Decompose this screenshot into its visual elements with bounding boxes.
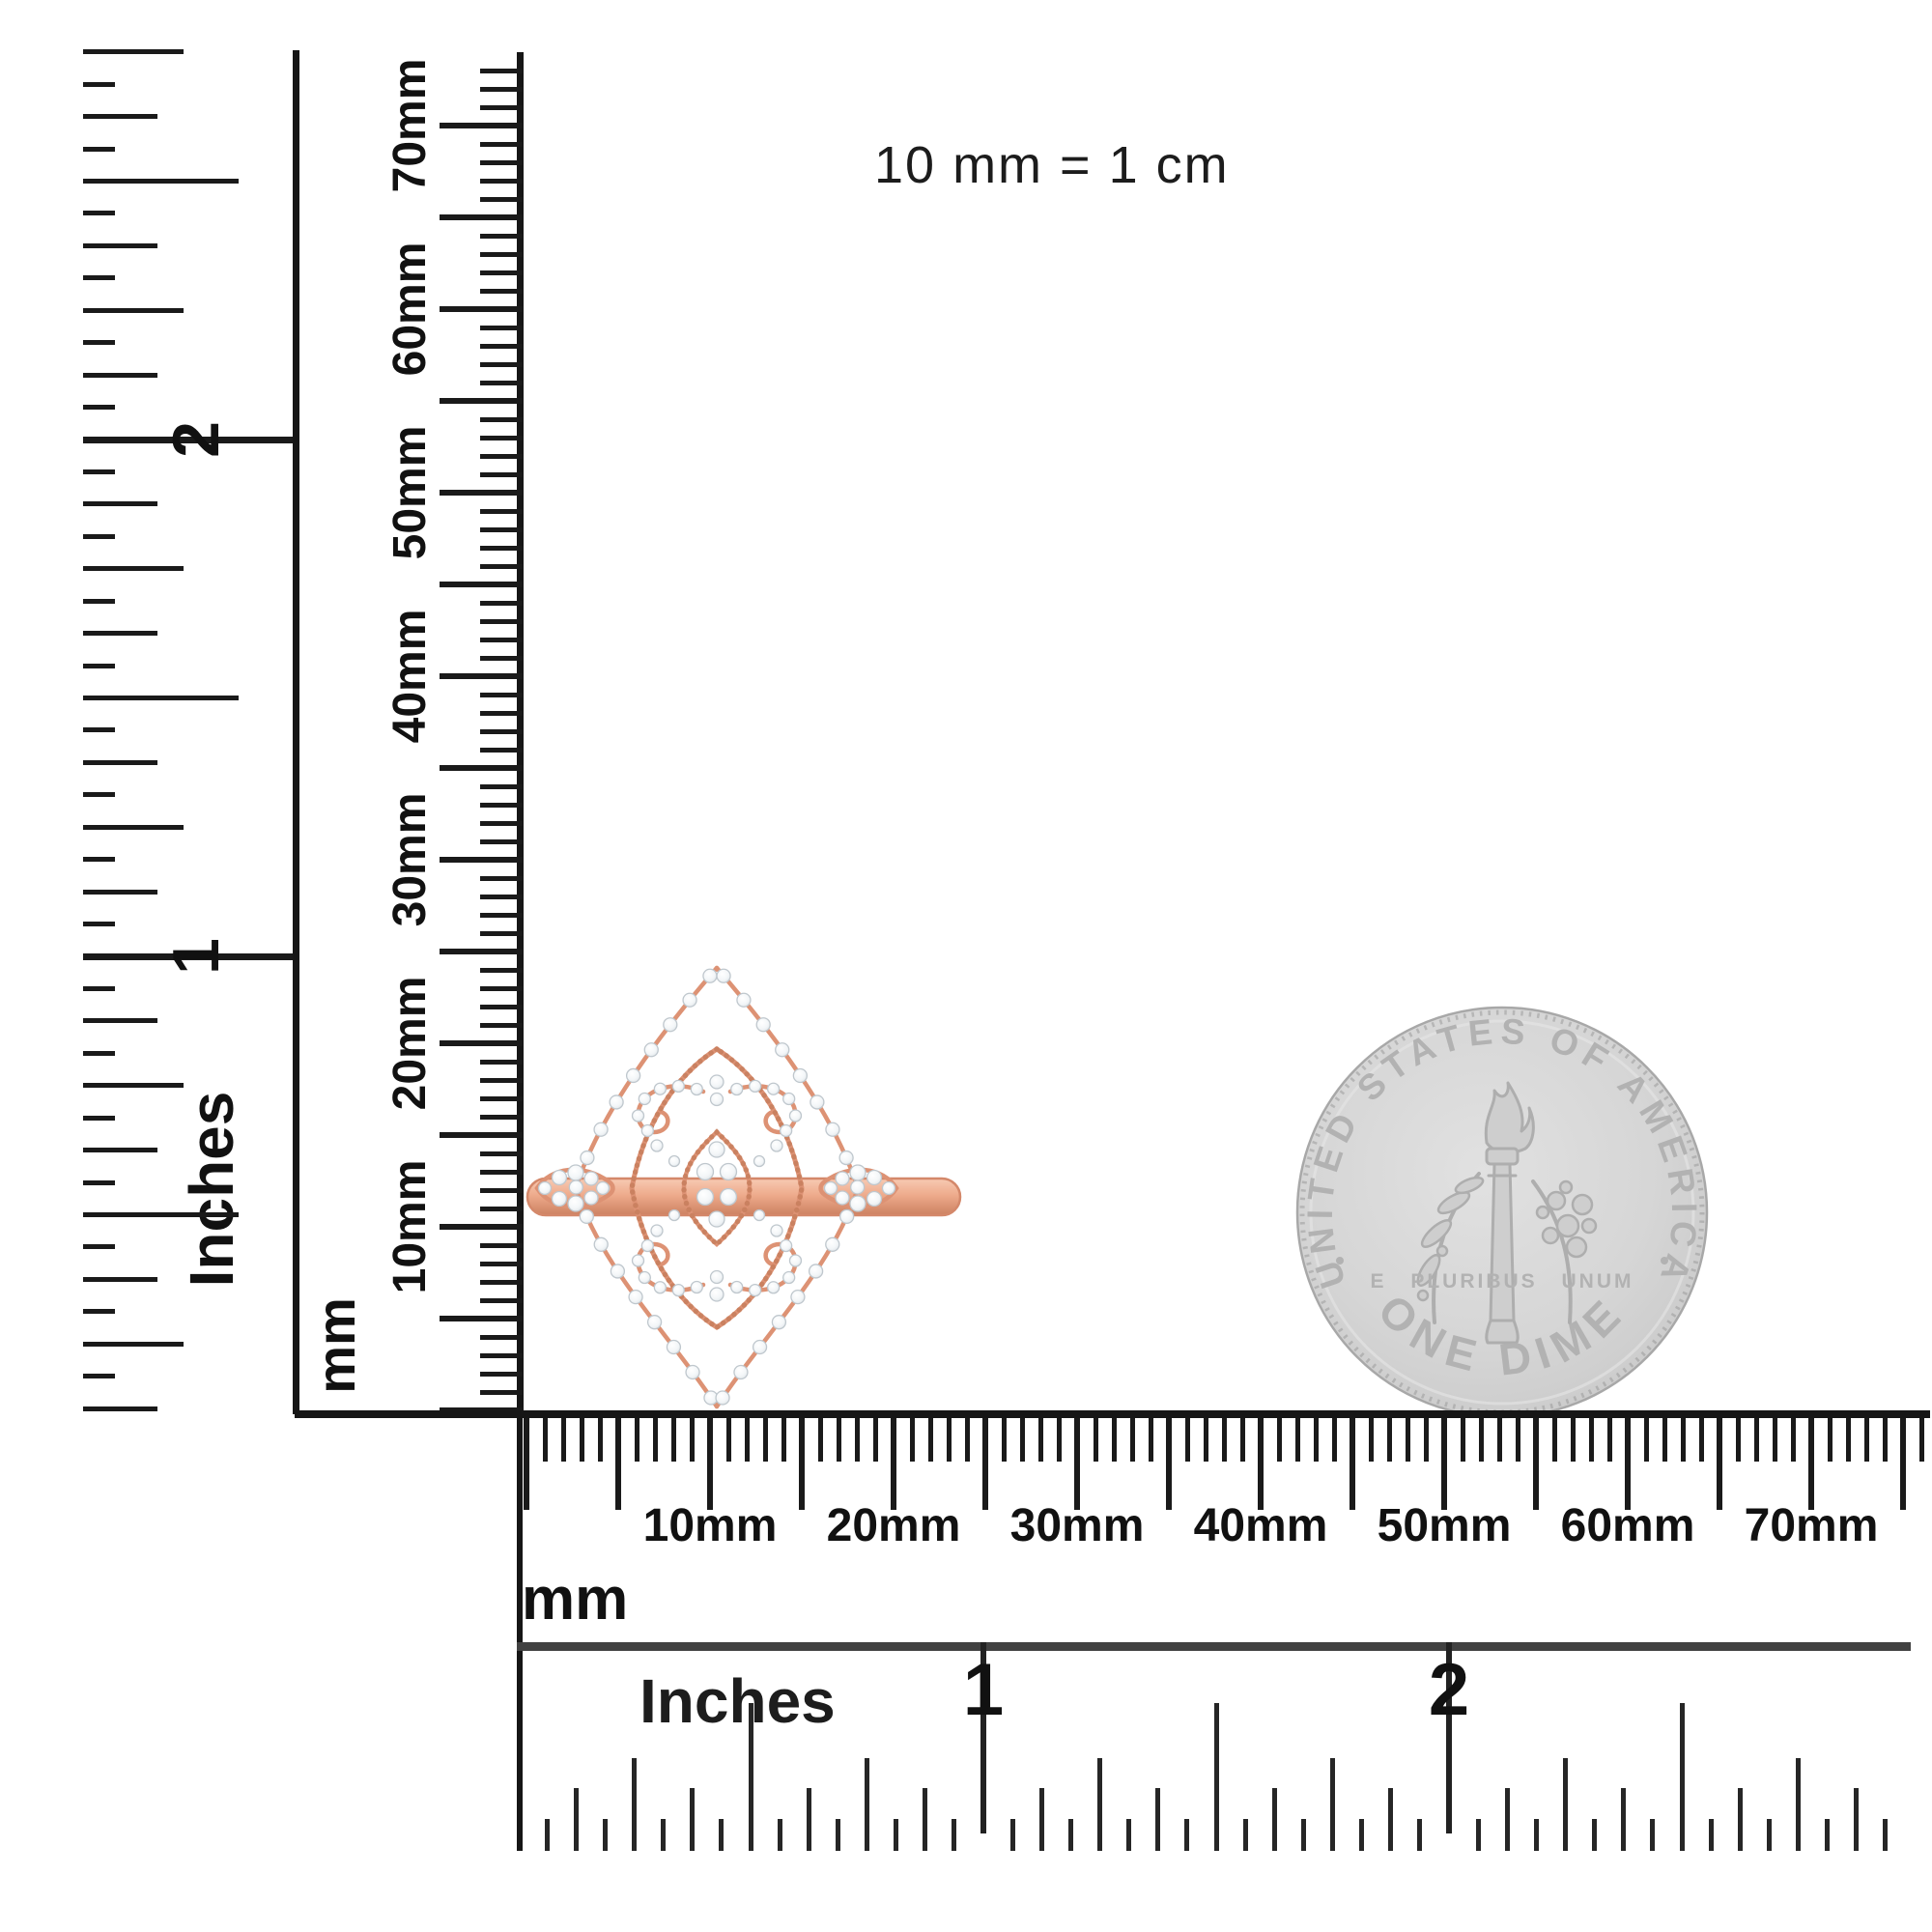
inches-tick-sixteenth — [83, 1374, 115, 1378]
diamond-stone — [734, 1365, 748, 1378]
inches-ruler-top-line — [517, 1642, 1911, 1651]
diamond-stone — [651, 1225, 663, 1236]
mm-tick-major — [440, 1316, 523, 1321]
mm-tick — [1919, 1418, 1924, 1462]
mm-ruler-label: 40mm — [1174, 1499, 1348, 1552]
diamond-stone — [851, 1180, 865, 1194]
mm-tick — [480, 1096, 523, 1101]
diamond-stone — [644, 1043, 658, 1057]
mm-tick-major — [1166, 1418, 1172, 1510]
mm-tick — [480, 454, 523, 459]
inches-tick-sixteenth — [83, 599, 115, 604]
left-inches-unit-label: Inches — [173, 1064, 250, 1315]
diamond-stone — [584, 1191, 598, 1205]
mm-tick — [1222, 1418, 1227, 1462]
diamond-stone — [667, 1340, 680, 1353]
diamond-stone — [810, 1264, 823, 1278]
inches-tick-sixteenth — [83, 1309, 115, 1314]
diamond-stone — [716, 1391, 729, 1405]
mm-tick — [818, 1418, 823, 1462]
inches-tick-eighth — [807, 1788, 811, 1851]
diamond-stone — [569, 1180, 582, 1194]
mm-tick — [480, 527, 523, 532]
diamond-stone — [826, 1237, 839, 1251]
diamond-stone — [772, 1316, 785, 1329]
mm-tick — [480, 656, 523, 661]
diamond-stone — [568, 1165, 583, 1180]
diamond-stone — [754, 1210, 765, 1221]
inches-tick-eighth — [83, 1277, 157, 1282]
mm-tick — [873, 1418, 878, 1462]
mm-tick — [1277, 1418, 1282, 1462]
inches-tick-sixteenth — [1767, 1819, 1772, 1851]
mm-tick-major — [615, 1418, 621, 1510]
inches-tick-sixteenth — [83, 1244, 115, 1249]
mm-tick — [1149, 1418, 1153, 1462]
mm-tick — [1516, 1418, 1520, 1462]
diamond-stone — [776, 1043, 789, 1057]
diamond-stone — [839, 1151, 853, 1165]
inches-tick-eighth — [83, 1148, 157, 1152]
mm-tick-major — [982, 1418, 988, 1510]
mm-tick — [480, 821, 523, 826]
left-mm-unit-label: mm — [300, 1259, 370, 1433]
inches-tick-quarter — [1097, 1758, 1102, 1851]
inches-tick-quarter — [1796, 1758, 1801, 1851]
mm-tick — [1295, 1418, 1300, 1462]
inch-numeral: 1 — [157, 918, 235, 995]
inches-tick-eighth — [83, 631, 157, 636]
mm-tick — [745, 1418, 750, 1462]
bottom-mm-unit-label: mm — [522, 1565, 628, 1634]
mm-tick — [781, 1418, 786, 1462]
inch-numeral: 2 — [157, 401, 235, 478]
inch-numeral: 2 — [1406, 1648, 1492, 1732]
inches-tick-sixteenth — [83, 147, 115, 152]
inches-tick-eighth — [83, 1406, 157, 1411]
mm-tick — [480, 234, 523, 239]
mm-tick — [480, 784, 523, 789]
bottom-inches-unit-label: Inches — [639, 1665, 836, 1737]
diamond-stone — [789, 1255, 801, 1266]
mm-tick — [1736, 1418, 1741, 1462]
mm-tick-major — [1074, 1418, 1080, 1510]
diamond-stone — [771, 1140, 782, 1151]
diamond-stone — [754, 1156, 765, 1167]
inches-tick-quarter — [865, 1758, 869, 1851]
inches-tick-eighth — [1505, 1788, 1510, 1851]
mm-tick — [480, 1335, 523, 1340]
mm-tick-major — [1533, 1418, 1539, 1510]
inches-tick-sixteenth — [1825, 1819, 1830, 1851]
inches-tick-sixteenth — [83, 792, 115, 797]
inches-tick-eighth — [574, 1788, 579, 1851]
inches-tick-sixteenth — [545, 1819, 550, 1851]
inches-tick-sixteenth — [1301, 1819, 1306, 1851]
inches-tick-quarter — [1330, 1758, 1335, 1851]
torch-holder — [1487, 1149, 1518, 1164]
mm-tick — [1038, 1418, 1043, 1462]
diamond-stone — [669, 1210, 680, 1221]
mm-tick — [480, 1023, 523, 1028]
diamond-stone — [581, 1151, 594, 1165]
mm-tick — [1461, 1418, 1465, 1462]
diamond-stone — [750, 1285, 761, 1296]
diamond-stone — [711, 1271, 724, 1284]
mm-tick — [480, 105, 523, 110]
mm-ruler-label: 70mm — [375, 39, 444, 213]
diamond-stone — [825, 1182, 838, 1195]
mm-tick-major — [1441, 1418, 1447, 1510]
mm-tick-major — [799, 1418, 805, 1510]
inches-tick-eighth — [1621, 1788, 1626, 1851]
inches-tick-sixteenth — [1010, 1819, 1015, 1851]
inches-tick-eighth — [1039, 1788, 1044, 1851]
inches-tick-eighth — [1738, 1788, 1743, 1851]
inches-tick-sixteenth — [83, 1051, 115, 1056]
mm-tick — [480, 1151, 523, 1156]
diamond-stone — [580, 1209, 593, 1223]
diamond-stone — [750, 1080, 761, 1092]
diamond-stone — [553, 1171, 567, 1185]
mm-tick — [480, 509, 523, 514]
mm-tick — [1112, 1418, 1117, 1462]
inches-tick-sixteenth — [83, 534, 115, 539]
mm-tick — [480, 1207, 523, 1211]
diamond-stone — [883, 1182, 895, 1195]
mm-tick-major — [707, 1418, 713, 1510]
inches-tick-sixteenth — [83, 340, 115, 345]
mm-tick — [965, 1418, 970, 1462]
inches-tick-sixteenth — [1068, 1819, 1073, 1851]
mm-tick-major — [440, 306, 523, 312]
mm-tick — [1644, 1418, 1649, 1462]
diamond-stone — [594, 1122, 608, 1136]
inches-tick-eighth — [83, 373, 157, 378]
mm-tick-major — [1808, 1418, 1814, 1510]
mm-tick-major — [440, 398, 523, 404]
inches-tick-half — [83, 696, 239, 700]
mm-tick — [1387, 1418, 1392, 1462]
mm-tick — [837, 1418, 841, 1462]
mm-tick — [1406, 1418, 1410, 1462]
mm-tick — [1369, 1418, 1374, 1462]
mm-tick — [480, 546, 523, 551]
inches-tick-sixteenth — [894, 1819, 898, 1851]
inches-tick-eighth — [83, 114, 157, 119]
mm-tick — [480, 601, 523, 606]
mm-tick — [690, 1418, 695, 1462]
inches-tick-half — [83, 1212, 239, 1217]
inches-tick-sixteenth — [83, 922, 115, 926]
mm-tick — [480, 1115, 523, 1120]
diamond-stone — [697, 1164, 714, 1180]
mm-tick-major — [440, 673, 523, 679]
diamond-stone — [553, 1192, 567, 1207]
mm-tick — [928, 1418, 933, 1462]
diamond-stone — [867, 1192, 882, 1207]
mm-tick — [480, 160, 523, 165]
inches-tick-eighth — [1155, 1788, 1160, 1851]
diamond-stone — [627, 1068, 640, 1082]
diamond-stone — [783, 1093, 795, 1104]
mm-tick — [480, 1078, 523, 1083]
inches-tick-half — [1680, 1703, 1685, 1851]
diamond-stone — [783, 1272, 795, 1284]
diamond-stone — [721, 1189, 737, 1206]
inches-tick-eighth — [1854, 1788, 1859, 1851]
mm-ruler-label: 10mm — [375, 1140, 444, 1314]
diamond-stone — [771, 1225, 782, 1236]
mm-tick — [480, 344, 523, 349]
diamond-stone — [651, 1140, 663, 1151]
inches-tick-sixteenth — [83, 469, 115, 474]
diamond-stone — [781, 1124, 792, 1136]
diamond-stone — [850, 1196, 866, 1211]
mm-tick-major — [440, 857, 523, 863]
mm-tick — [598, 1418, 603, 1462]
inches-tick-quarter — [83, 1083, 184, 1088]
inches-tick-eighth — [1272, 1788, 1277, 1851]
mm-tick-major — [1350, 1418, 1355, 1510]
diamond-stone — [568, 1196, 583, 1211]
diamond-stone — [672, 1080, 684, 1092]
inches-tick-sixteenth — [1534, 1819, 1539, 1851]
mm-tick — [1130, 1418, 1135, 1462]
diamond-stone — [791, 1291, 805, 1304]
mm-tick — [480, 638, 523, 642]
coin-dot-right — [1661, 1257, 1668, 1264]
mm-tick-major — [1717, 1418, 1722, 1510]
mm-ruler-label: 60mm — [1541, 1499, 1715, 1552]
mm-tick — [480, 748, 523, 753]
mm-tick — [671, 1418, 676, 1462]
scale-note-text: 10 mm = 1 cm — [874, 135, 1230, 195]
diamond-stone — [768, 1083, 780, 1094]
mm-tick — [480, 1390, 523, 1395]
mm-tick — [726, 1418, 731, 1462]
inches-tick-sixteenth — [83, 986, 115, 991]
diamond-stone — [697, 1189, 714, 1206]
mm-tick — [480, 362, 523, 367]
inches-tick-sixteenth — [83, 275, 115, 280]
inches-tick-eighth — [83, 243, 157, 248]
diamond-stone — [850, 1165, 866, 1180]
mm-tick — [1314, 1418, 1319, 1462]
diamond-stone — [691, 1281, 702, 1293]
inches-tick-eighth — [83, 760, 157, 765]
diamond-stone — [826, 1122, 839, 1136]
diamond-stone — [709, 1142, 724, 1157]
mm-tick — [480, 417, 523, 422]
mm-tick — [480, 895, 523, 899]
mm-tick — [947, 1418, 952, 1462]
mm-tick — [1185, 1418, 1190, 1462]
mm-tick-major — [1258, 1418, 1264, 1510]
diamond-stone — [683, 993, 696, 1007]
mm-tick-major — [440, 214, 523, 220]
mm-tick — [480, 252, 523, 257]
mm-ruler-label: 30mm — [375, 773, 444, 947]
inches-tick-sixteenth — [1126, 1819, 1131, 1851]
inches-tick-sixteenth — [1650, 1819, 1655, 1851]
mm-tick — [1681, 1418, 1686, 1462]
mm-tick — [1094, 1418, 1098, 1462]
mm-ruler-label: 10mm — [623, 1499, 797, 1552]
mm-tick — [480, 1298, 523, 1303]
mm-tick — [480, 1188, 523, 1193]
inches-tick-eighth — [83, 1018, 157, 1023]
diamond-stone — [836, 1191, 849, 1205]
mm-tick — [1240, 1418, 1245, 1462]
mm-ruler-label: 40mm — [375, 589, 444, 763]
diamond-stone — [753, 1340, 767, 1353]
mm-ruler-label: 70mm — [1724, 1499, 1898, 1552]
mm-tick-major — [440, 1040, 523, 1046]
diamond-stone — [721, 1164, 737, 1180]
inches-tick-sixteenth — [83, 211, 115, 215]
diamond-stone — [654, 1282, 666, 1293]
mm-tick-major — [440, 582, 523, 587]
diamond-stone — [737, 993, 751, 1007]
mm-tick — [480, 270, 523, 275]
mm-tick-major — [440, 1132, 523, 1138]
mm-tick — [635, 1418, 639, 1462]
mm-tick — [1204, 1418, 1208, 1462]
diamond-stone — [669, 1156, 680, 1167]
inches-tick-sixteenth — [83, 1116, 115, 1121]
mm-tick — [480, 436, 523, 440]
torch-shaft — [1491, 1164, 1514, 1321]
diamond-stone — [633, 1110, 644, 1122]
mm-tick — [1332, 1418, 1337, 1462]
diamond-stone — [539, 1182, 552, 1195]
mm-tick-major — [440, 765, 523, 771]
inches-tick-sixteenth — [1592, 1819, 1597, 1851]
mm-tick — [543, 1418, 548, 1462]
diamond-stone — [710, 1288, 724, 1301]
inches-tick-sixteenth — [1709, 1819, 1714, 1851]
inches-tick-quarter — [83, 1342, 184, 1347]
inches-tick-half — [749, 1703, 753, 1851]
mm-tick-major — [440, 949, 523, 954]
diamond-stone — [836, 1172, 849, 1185]
inches-tick-sixteenth — [83, 857, 115, 862]
diamond-stone — [648, 1316, 662, 1329]
ring-image — [512, 947, 966, 1430]
mm-ruler-label: 20mm — [807, 1499, 980, 1552]
inches-tick-quarter — [83, 825, 184, 830]
mm-tick — [1057, 1418, 1062, 1462]
inch-numeral: 1 — [940, 1648, 1027, 1732]
mm-tick — [855, 1418, 860, 1462]
diamond-stone — [664, 1018, 677, 1032]
diamond-stone — [594, 1237, 608, 1251]
mm-tick — [480, 913, 523, 918]
dime-coin: UNITED STATES OF AMERICA ONE DIME E PLUR… — [1290, 1002, 1715, 1427]
mm-tick-major — [440, 1224, 523, 1230]
mm-tick — [480, 1262, 523, 1266]
mm-tick — [480, 1060, 523, 1065]
mm-tick — [480, 564, 523, 569]
inches-tick-sixteenth — [1359, 1819, 1364, 1851]
mm-ruler-label: 20mm — [375, 956, 444, 1130]
inches-tick-sixteenth — [952, 1819, 956, 1851]
inches-tick-sixteenth — [1417, 1819, 1422, 1851]
mm-tick — [480, 69, 523, 73]
inches-tick-quarter — [83, 49, 184, 54]
mm-tick — [1662, 1418, 1667, 1462]
diamond-stone — [711, 1094, 724, 1106]
diamond-stone — [867, 1171, 882, 1185]
mm-ruler-label: 30mm — [990, 1499, 1164, 1552]
inches-tick-eighth — [83, 501, 157, 506]
diamond-stone — [710, 1075, 724, 1089]
mm-tick — [1773, 1418, 1777, 1462]
mm-tick — [480, 87, 523, 92]
diamond-stone — [840, 1209, 854, 1223]
mm-tick — [1699, 1418, 1704, 1462]
diamond-stone — [731, 1084, 743, 1095]
diamond-stone — [703, 969, 717, 982]
inches-tick-sixteenth — [83, 727, 115, 732]
mm-tick — [1589, 1418, 1594, 1462]
diamond-stone — [731, 1281, 743, 1293]
inches-tick-half — [83, 179, 239, 184]
mm-tick — [763, 1418, 768, 1462]
inches-tick-sixteenth — [83, 82, 115, 87]
mm-tick — [480, 986, 523, 991]
inches-tick-eighth — [83, 890, 157, 895]
inches-tick-sixteenth — [83, 405, 115, 410]
diamond-stone — [691, 1084, 702, 1095]
diamond-stone — [686, 1365, 699, 1378]
mm-tick — [1607, 1418, 1612, 1462]
mm-tick-major — [1900, 1418, 1906, 1510]
mm-tick — [910, 1418, 915, 1462]
inches-tick-sixteenth — [1883, 1819, 1888, 1851]
diamond-stone — [756, 1018, 770, 1032]
diamond-stone — [629, 1291, 642, 1304]
inches-tick-sixteenth — [836, 1819, 840, 1851]
diamond-stone — [654, 1083, 666, 1094]
diamond-stone — [641, 1240, 653, 1252]
diamond-stone — [639, 1272, 650, 1284]
mm-tick — [480, 968, 523, 973]
diamond-stone — [717, 969, 730, 982]
mm-tick — [480, 381, 523, 385]
mm-tick — [1571, 1418, 1576, 1462]
mm-tick — [1883, 1418, 1888, 1462]
mm-tick — [653, 1418, 658, 1462]
inches-tick-eighth — [923, 1788, 927, 1851]
inches-tick-sixteenth — [603, 1819, 608, 1851]
mm-tick — [1020, 1418, 1025, 1462]
mm-tick — [480, 839, 523, 844]
mm-tick — [480, 142, 523, 147]
mm-ruler-top-line — [295, 1410, 1930, 1418]
coin-dot-left — [1336, 1257, 1344, 1264]
inches-tick-sixteenth — [719, 1819, 724, 1851]
mm-tick — [480, 1280, 523, 1285]
diamond-stone — [584, 1172, 598, 1185]
coin-motto-text: E PLURIBUS UNUM — [1370, 1270, 1634, 1293]
mm-tick — [480, 619, 523, 624]
mm-tick — [1424, 1418, 1429, 1462]
inches-tick-half — [1214, 1703, 1219, 1851]
mm-tick — [480, 197, 523, 202]
mm-tick — [480, 1005, 523, 1009]
